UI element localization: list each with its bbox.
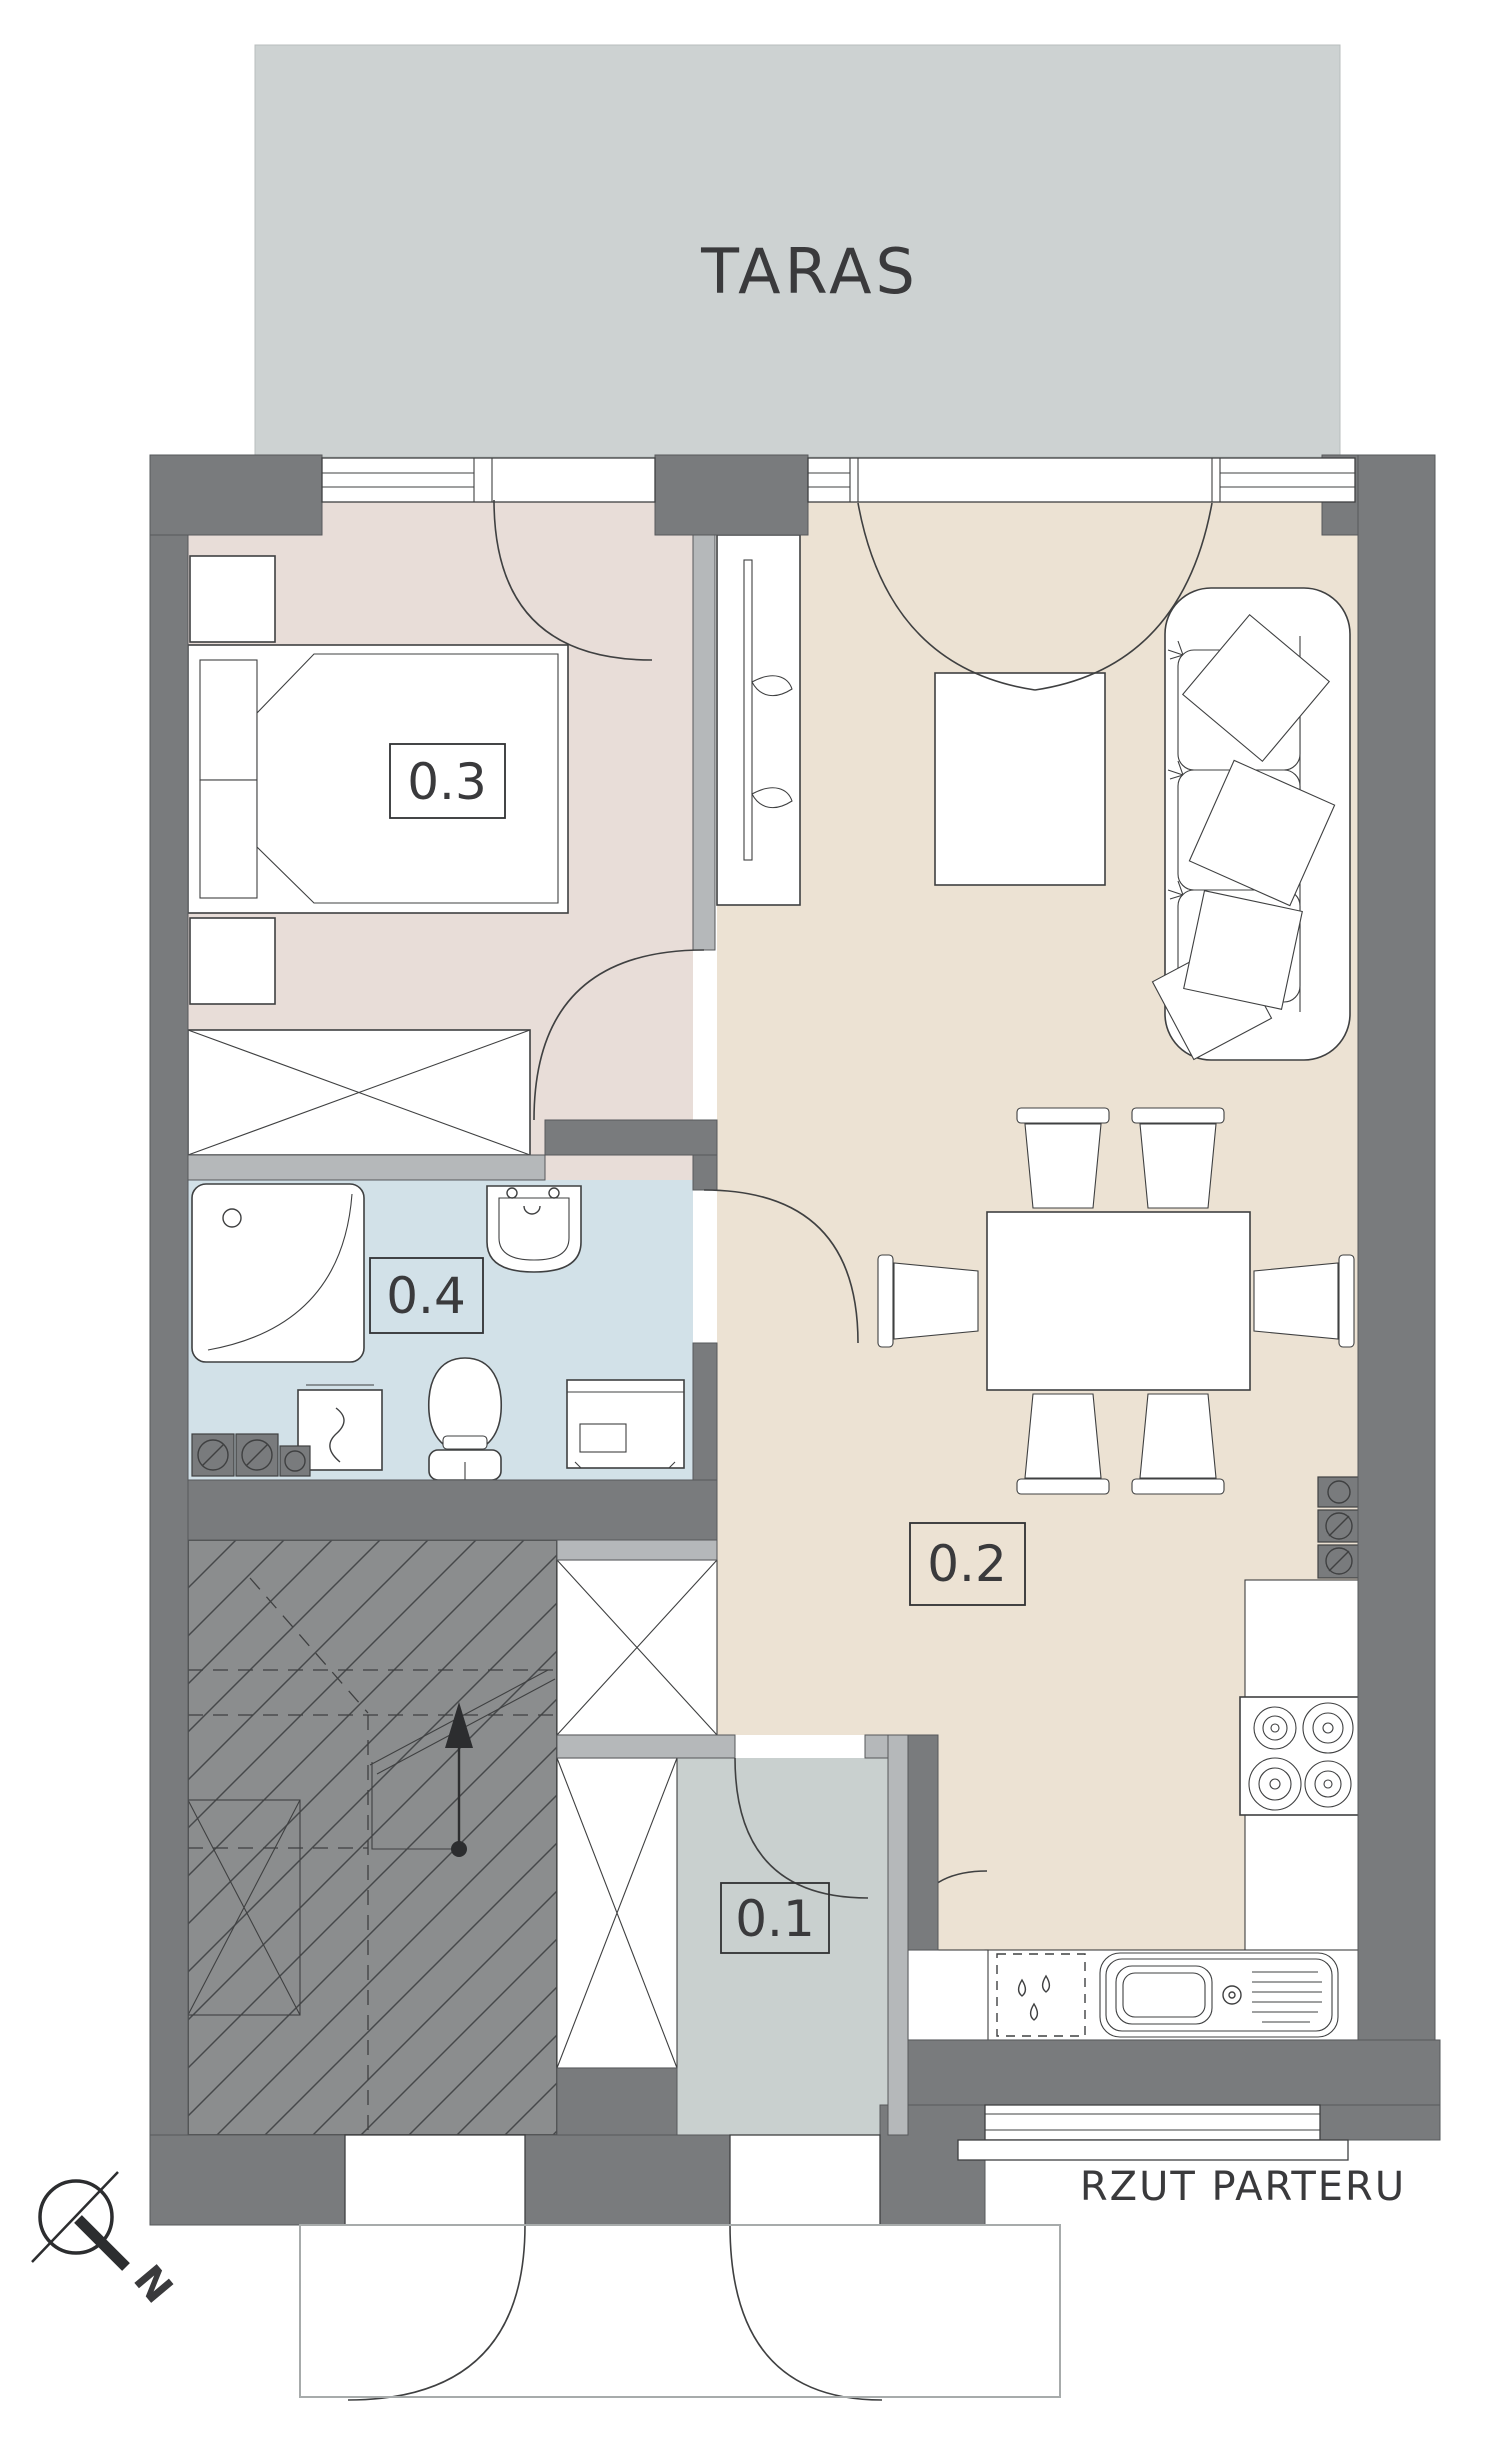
wall-bathroom-bottom	[188, 1480, 717, 1540]
wall-bathroom-jamb	[693, 1155, 717, 1190]
wall-corner-top-left	[150, 455, 322, 535]
nightstand-bottom	[190, 918, 275, 1004]
entrance-opening-right	[730, 2135, 880, 2225]
entrance-porch-outline	[300, 2225, 1060, 2397]
room-label-0-4: 0.4	[386, 1267, 466, 1325]
washbasin	[487, 1186, 581, 1272]
tv-cabinet	[717, 535, 800, 905]
partition-bathroom-top	[188, 1155, 545, 1180]
tall-cabinet-fridge	[908, 1950, 988, 2040]
wall-hall-kitchen	[908, 1735, 938, 1950]
vent-duct-stack	[1318, 1477, 1360, 1578]
floor-plan-svg: TARAS	[0, 0, 1492, 2458]
kitchen-window	[985, 2105, 1320, 2140]
bedroom-furniture	[188, 556, 568, 1155]
wall-vestibule	[545, 1120, 717, 1155]
wall-pillar-top-middle	[655, 455, 808, 535]
wall-left	[150, 455, 188, 2135]
entrance-opening-left	[345, 2135, 525, 2225]
wall-bathroom-right	[693, 1343, 717, 1480]
terrace-label: TARAS	[700, 235, 919, 308]
water-heater-cabinet	[298, 1385, 382, 1470]
room-label-0-2: 0.2	[927, 1535, 1007, 1593]
partition-shaft-cap	[557, 1540, 717, 1560]
partition-tv-wall	[693, 535, 715, 950]
washing-machine	[567, 1380, 684, 1468]
sofa-pillow	[1184, 891, 1303, 1010]
stove	[1240, 1697, 1360, 1815]
wall-kitchen-bottom	[908, 2040, 1440, 2105]
partition-hall-top-right	[865, 1735, 888, 1758]
wall-entrance-middle-block	[525, 2135, 730, 2225]
wall-right	[1358, 455, 1435, 2105]
dishwasher	[997, 1954, 1085, 2036]
room-label-0-1: 0.1	[735, 1890, 815, 1948]
living-room-window	[808, 458, 1355, 502]
bed-pillow-top	[200, 660, 257, 780]
staircase	[188, 1540, 557, 2135]
sofa	[1152, 588, 1350, 1060]
room-label-0-3: 0.3	[407, 753, 487, 811]
partition-hall-right	[888, 1735, 908, 2135]
wall-corner-bottom-left	[150, 2135, 345, 2225]
double-bed	[188, 645, 568, 913]
toilet	[429, 1358, 501, 1480]
kitchen-sink	[1100, 1953, 1338, 2037]
north-label: N	[124, 2257, 181, 2312]
entrance-door-left-arc	[348, 2225, 525, 2400]
entrance-door-right-arc	[730, 2225, 882, 2400]
kitchen-window-sill	[958, 2140, 1348, 2160]
page-title: RZUT PARTERU	[1080, 2164, 1406, 2210]
dining-table	[987, 1212, 1250, 1390]
coffee-table	[935, 673, 1105, 885]
partition-hall-top-left	[557, 1735, 735, 1758]
wall-shaft-base	[557, 2068, 677, 2135]
bed-pillow-bottom	[200, 780, 257, 898]
floor-plan-page: TARAS	[0, 0, 1492, 2458]
wall-corner-bottom-right	[1320, 2105, 1440, 2140]
nightstand-top	[190, 556, 275, 642]
bedroom-window	[322, 458, 655, 502]
bathtub	[192, 1184, 364, 1362]
